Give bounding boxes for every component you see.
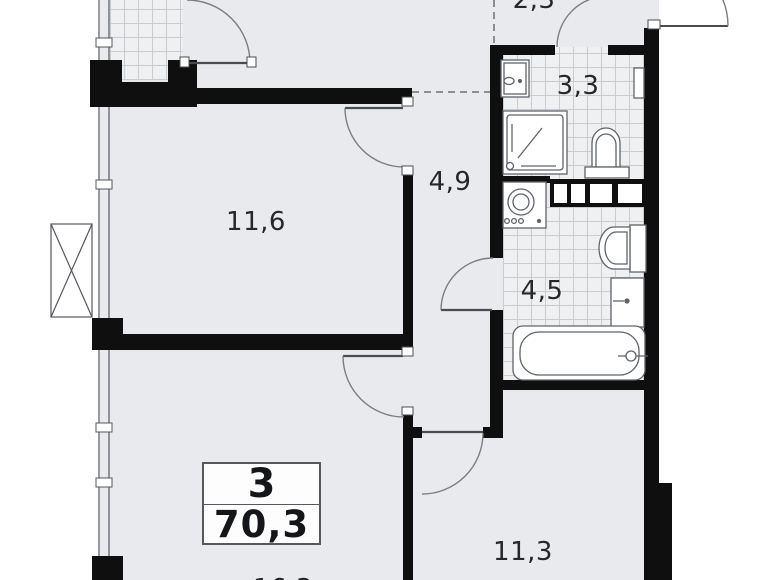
room-label-4-5: 4,5 xyxy=(521,276,564,306)
wall-bathrooms-left-lower xyxy=(490,310,503,438)
wall-hallway-left-corner xyxy=(403,334,413,356)
wall-bathroom-top-north-right xyxy=(608,45,645,55)
total-area: 70,3 xyxy=(204,505,319,543)
wall-step-block xyxy=(168,60,197,107)
wall-bathroom-bottom-south xyxy=(490,380,658,390)
wall-room116-bottom xyxy=(110,334,404,350)
room-label-2-3: 2,3 xyxy=(513,0,556,15)
vent-duct-block xyxy=(550,179,647,207)
wall-hallway-left xyxy=(403,170,413,334)
bathroom-top-tiled-floor xyxy=(503,47,644,180)
wall-left-bottom-pier xyxy=(92,556,123,580)
floor-plan: 11,6 4,9 3,3 2,3 4,5 11,3 16,3 3 70,3 xyxy=(0,0,780,580)
wall-right-exterior xyxy=(644,28,659,580)
room-label-3-3: 3,3 xyxy=(557,71,600,101)
rooms-count: 3 xyxy=(204,464,319,505)
wall-right-exterior-widening xyxy=(659,483,672,580)
room-label-living-partial: 16,3 xyxy=(253,574,313,580)
wall-left-mid-pier xyxy=(92,318,123,350)
room-label-4-9: 4,9 xyxy=(429,167,472,197)
wall-under-kitchen xyxy=(110,82,168,107)
room-label-11-6: 11,6 xyxy=(226,207,286,237)
wall-bathroom-top-north-left xyxy=(490,45,555,55)
apartment-summary-box: 3 70,3 xyxy=(202,462,321,545)
wall-room-divider-vertical xyxy=(403,415,413,580)
wall-door113-jamb-left xyxy=(413,427,422,438)
wall-between-bathrooms xyxy=(490,176,550,183)
entry-door-arc xyxy=(657,0,728,26)
wall-bathrooms-left-upper xyxy=(490,45,503,258)
exterior-shaft-box xyxy=(51,224,92,317)
wall-room116-top xyxy=(197,88,412,104)
room-label-11-3: 11,3 xyxy=(493,537,553,567)
